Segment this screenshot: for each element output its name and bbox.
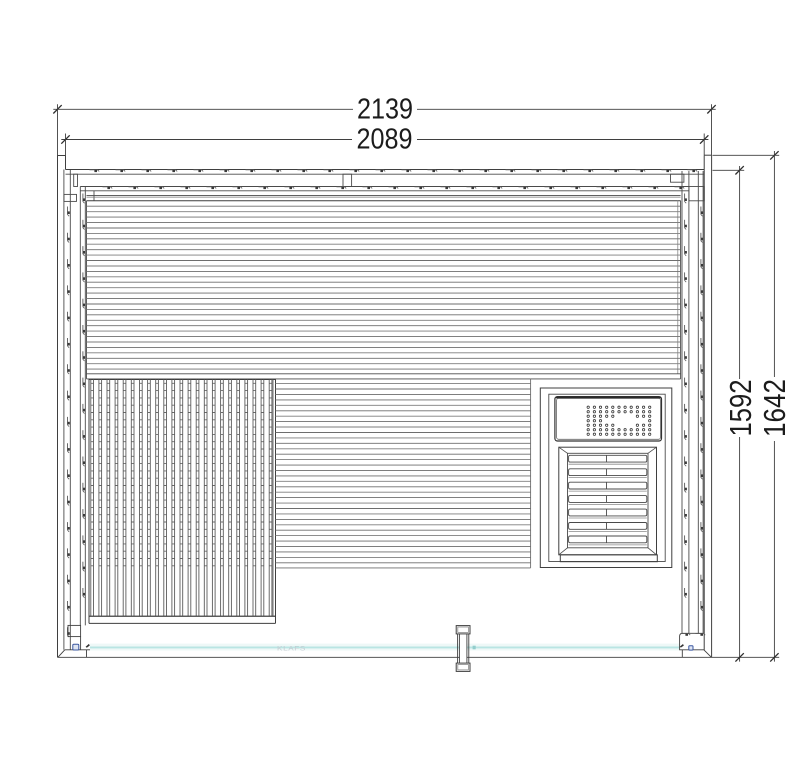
svg-text:2089: 2089 [357, 124, 413, 156]
svg-text:2139: 2139 [357, 93, 413, 125]
svg-text:KLAFS: KLAFS [277, 646, 306, 653]
svg-text:1642: 1642 [757, 379, 792, 437]
svg-text:1592: 1592 [723, 380, 758, 437]
